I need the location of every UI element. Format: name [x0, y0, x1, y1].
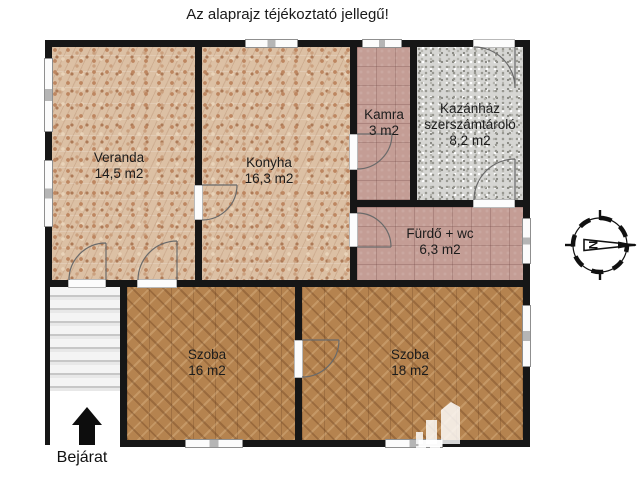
- window-szoba18-right: [522, 305, 531, 367]
- window-furdo-right: [522, 218, 531, 264]
- door-kazanhaz-exterior: [473, 39, 515, 48]
- floor-plan-canvas: Az alaprajz téjékoztató jellegű!: [0, 0, 640, 480]
- compass-icon: N: [562, 207, 638, 283]
- room-label-konyha: Konyha 16,3 m2: [219, 155, 319, 187]
- window-szoba16-bottom: [185, 439, 243, 448]
- door-konyha-kamra: [349, 134, 358, 170]
- window-veranda-left-2: [44, 160, 53, 227]
- wall-veranda-konyha: [195, 47, 202, 280]
- door-veranda-konyha: [194, 185, 203, 220]
- door-veranda-stairs: [68, 279, 106, 288]
- room-area: 14,5 m2: [95, 166, 144, 181]
- room-area: 18 m2: [391, 363, 429, 378]
- room-label-szoba-16: Szoba 16 m2: [157, 347, 257, 379]
- compass-north-letter: N: [586, 241, 600, 250]
- room-name: Kazánház szerszámtároló: [424, 101, 516, 132]
- room-name: Szoba: [391, 347, 429, 362]
- room-area: 6,3 m2: [419, 242, 460, 257]
- window-konyha-top: [245, 39, 298, 48]
- entrance-label: Bejárat: [42, 449, 122, 467]
- watermark-building-icon: [416, 402, 468, 448]
- room-label-furdo: Fürdő + wc 6,3 m2: [385, 226, 495, 258]
- room-area: 3 m2: [369, 123, 399, 138]
- room-label-szoba-18: Szoba 18 m2: [360, 347, 460, 379]
- entrance-stairs: [50, 287, 120, 391]
- room-name: Konyha: [246, 155, 292, 170]
- door-furdo-kazanhaz: [473, 199, 515, 208]
- room-label-kazanhaz: Kazánház szerszámtároló 8,2 m2: [416, 101, 524, 149]
- door-szoba16-szoba18: [294, 340, 303, 378]
- room-name: Szoba: [188, 347, 226, 362]
- wall-middle: [45, 280, 530, 287]
- watermark-sub-text: INGATLAN: [454, 445, 640, 459]
- window-veranda-left-1: [44, 58, 53, 132]
- room-area: 16 m2: [188, 363, 226, 378]
- watermark-brand-text: VÁR: [580, 388, 640, 448]
- room-area: 16,3 m2: [245, 171, 294, 186]
- plan-disclaimer-title: Az alaprajz téjékoztató jellegű!: [45, 6, 530, 23]
- room-label-veranda: Veranda 14,5 m2: [69, 150, 169, 182]
- room-name: Fürdő + wc: [406, 226, 473, 241]
- entrance-arrow-shaft: [79, 423, 95, 445]
- window-kamra-top: [362, 39, 402, 48]
- door-konyha-furdo: [349, 213, 358, 247]
- room-label-kamra: Kamra 3 m2: [352, 107, 416, 139]
- wall-szoba-left: [120, 287, 127, 447]
- room-name: Kamra: [364, 107, 404, 122]
- watermark: VÁR INGATLAN: [398, 398, 640, 480]
- door-veranda-szoba16: [137, 279, 177, 288]
- room-name: Veranda: [94, 150, 144, 165]
- wall-entrance-left: [45, 287, 50, 445]
- room-area: 8,2 m2: [449, 133, 490, 148]
